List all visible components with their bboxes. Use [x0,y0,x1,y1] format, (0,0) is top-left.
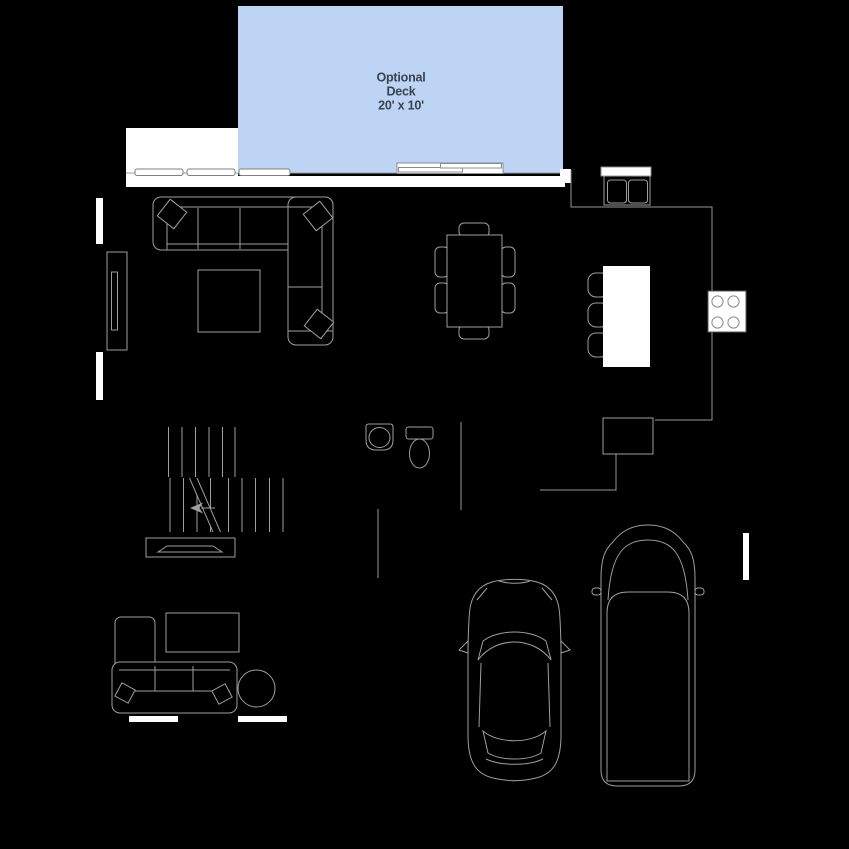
refrigerator [603,418,653,454]
deck-label-line2: Deck [386,85,415,99]
deck-label-line3: 20' x 10' [378,99,424,113]
left-window [96,198,103,244]
sliding-door-panel [441,164,502,169]
flex-room-window [238,716,287,722]
sink-counter [601,167,651,176]
dining-chair [501,283,515,313]
burner [728,317,739,328]
window-sill [187,169,235,176]
window-sill [239,169,290,176]
garage-window [743,533,749,580]
flex-room-window [129,716,178,722]
top-wall-band [126,176,565,187]
burner [728,296,739,307]
toilet-bowl [410,439,430,468]
burner [712,317,723,328]
sink-bowl [608,180,627,203]
sink-bowl [629,180,648,203]
toilet-tank [406,427,433,439]
left-window [96,352,103,400]
burner [712,296,723,307]
dining-chair [501,247,515,277]
floor-plan: Optional Deck 20' x 10' [0,0,849,849]
dining-table [447,235,502,327]
side-table [166,613,239,652]
floor-plan-canvas: Optional Deck 20' x 10' [0,0,849,849]
optional-deck: Optional Deck 20' x 10' [238,6,563,173]
round-table [238,670,275,707]
window-sill [135,169,183,176]
deck-label-line1: Optional [376,71,425,85]
wall-stub [560,169,571,183]
kitchen-island [603,266,650,367]
